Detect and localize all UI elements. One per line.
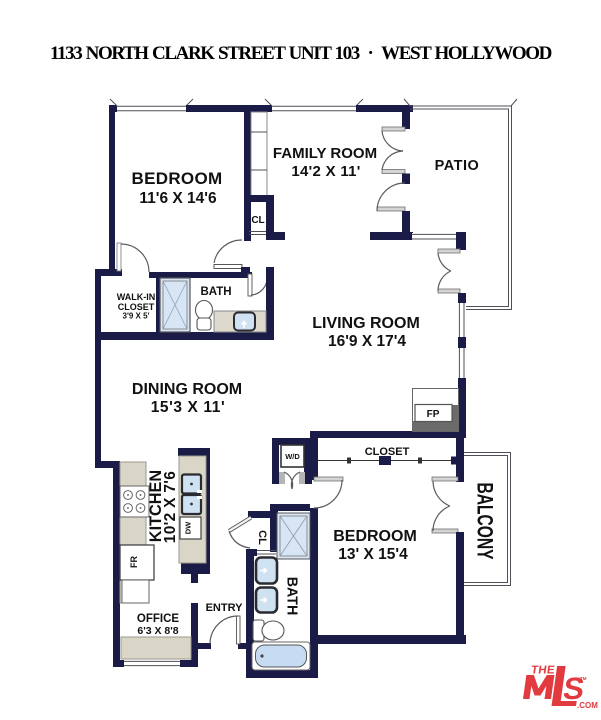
svg-text:BATH: BATH <box>200 286 231 298</box>
svg-text:TM: TM <box>580 676 587 681</box>
svg-text:10'2 X 7'6: 10'2 X 7'6 <box>162 471 179 544</box>
svg-text:14'2 X 11': 14'2 X 11' <box>291 163 360 180</box>
svg-text:6'3 X 8'8: 6'3 X 8'8 <box>137 625 178 637</box>
svg-text:FAMILY ROOM: FAMILY ROOM <box>273 145 377 162</box>
svg-text:16'9 X 17'4: 16'9 X 17'4 <box>328 333 406 350</box>
svg-text:OFFICE: OFFICE <box>137 613 179 625</box>
svg-text:BEDROOM: BEDROOM <box>333 528 417 545</box>
svg-text:LIVING ROOM: LIVING ROOM <box>312 315 420 332</box>
svg-text:FP: FP <box>427 409 440 420</box>
svg-text:CLOSET: CLOSET <box>365 446 410 458</box>
svg-text:.COM: .COM <box>577 701 598 710</box>
svg-text:ENTRY: ENTRY <box>206 602 244 614</box>
svg-text:CL: CL <box>256 530 268 545</box>
svg-text:WALK-IN: WALK-IN <box>117 292 156 302</box>
svg-text:THE: THE <box>530 665 556 677</box>
svg-text:W/D: W/D <box>285 452 300 461</box>
svg-text:3'9 X 5': 3'9 X 5' <box>123 312 150 321</box>
svg-text:11'6 X 14'6: 11'6 X 14'6 <box>139 190 217 207</box>
svg-text:FR: FR <box>129 556 139 568</box>
svg-text:BATH: BATH <box>284 577 301 616</box>
svg-text:15'3 X 11': 15'3 X 11' <box>151 399 226 416</box>
svg-text:DINING ROOM: DINING ROOM <box>132 381 242 398</box>
svg-text:BEDROOM: BEDROOM <box>132 169 223 188</box>
svg-text:PATIO: PATIO <box>435 158 480 174</box>
svg-text:13' X 15'4: 13' X 15'4 <box>338 546 408 563</box>
svg-text:CL: CL <box>251 215 264 226</box>
svg-text:BALCONY: BALCONY <box>473 483 498 560</box>
svg-text:CLOSET: CLOSET <box>118 302 155 312</box>
svg-text:DW: DW <box>184 521 193 534</box>
